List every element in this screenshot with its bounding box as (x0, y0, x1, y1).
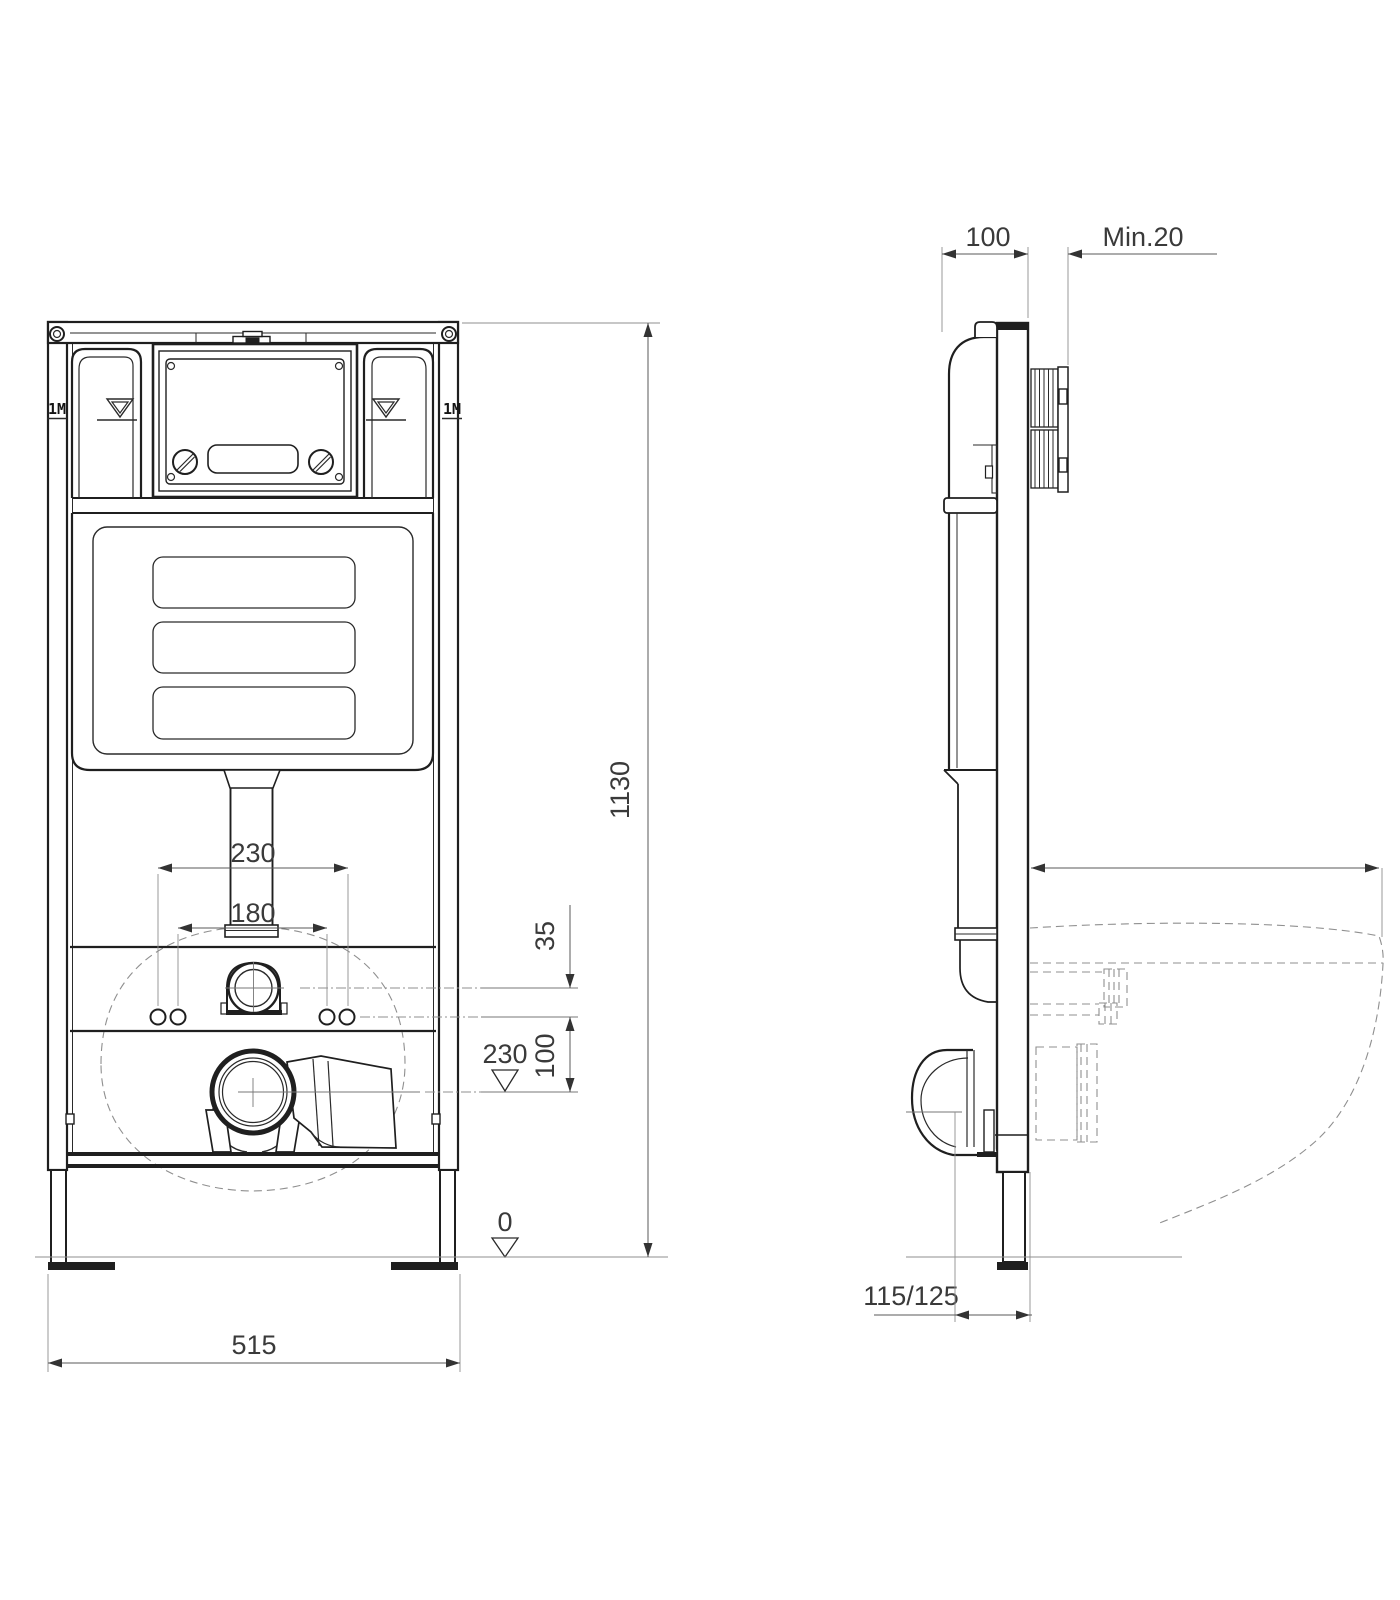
dim-label-1130: 1130 (605, 761, 635, 819)
dim-label-115-125: 115/125 (863, 1281, 959, 1311)
rail-clip-right (432, 1114, 440, 1124)
right-foot (391, 1262, 458, 1270)
left-rail (48, 322, 67, 1170)
datum-triangle-icon (492, 1238, 518, 1257)
front-view: 1M 1M 230 180 35 10 (35, 322, 668, 1372)
waste-outlet (206, 1051, 420, 1152)
cistern (72, 344, 433, 770)
dimension-frame-depth: 100 (942, 222, 1028, 332)
cistern-label-panel (93, 527, 413, 754)
hidden-waste-connector (1036, 1044, 1097, 1142)
right-leg (440, 1170, 455, 1263)
waste-elbow (287, 1056, 396, 1148)
screw-icon-left (173, 450, 197, 474)
dim-label-35: 35 (530, 921, 560, 951)
hidden-inlet-connector (1104, 969, 1127, 1007)
mounting-bolt (340, 1010, 355, 1025)
right-rail (439, 322, 458, 1170)
flush-pipe-profile (955, 784, 997, 1002)
hidden-flush-connector (1099, 1003, 1117, 1024)
datum-triangle-icon (492, 1070, 518, 1091)
label-slot (153, 622, 355, 673)
level-drain-height: 230 (482, 1039, 527, 1091)
screw-icon-right (309, 450, 333, 474)
technical-drawing: 1M 1M 230 180 35 10 (0, 0, 1400, 1600)
shaft-flange (1058, 367, 1068, 492)
cistern-arch-right (364, 349, 433, 498)
access-panel (153, 344, 357, 497)
mounting-bolt (151, 1010, 166, 1025)
label-slot (153, 557, 355, 608)
hidden-connections (1030, 923, 1383, 1224)
cistern-body (72, 513, 433, 770)
dimension-frame-width: 515 (48, 1274, 460, 1372)
dim-label-515: 515 (231, 1330, 276, 1360)
dim-label-100-depth: 100 (965, 222, 1010, 252)
frame-marker-left: 1M (48, 400, 66, 418)
cistern-arch-left (72, 349, 141, 498)
side-leg (1003, 1172, 1025, 1262)
level-label-0: 0 (497, 1207, 512, 1237)
dim-label-180-bolts: 180 (230, 898, 275, 928)
level-floor: 0 (492, 1207, 518, 1257)
flush-bend-connection (221, 962, 287, 1015)
frame-marker-right: 1M (443, 400, 461, 418)
level-label-230: 230 (482, 1039, 527, 1069)
dimension-pipe-to-bolts: 35 (530, 905, 575, 988)
fixing-hole-right (442, 327, 456, 341)
cistern-profile (944, 322, 997, 784)
hidden-bowl-profile (1030, 923, 1383, 1224)
side-view: 100 Min.20 115/125 (863, 222, 1383, 1322)
left-leg (51, 1170, 66, 1263)
side-foot (997, 1262, 1028, 1270)
bottom-rail (67, 1152, 439, 1156)
frame-profile (997, 323, 1028, 1270)
left-foot (48, 1262, 115, 1270)
inspection-shaft (1031, 367, 1068, 492)
fill-valve-cap (975, 322, 997, 337)
dim-label-100-right: 100 (530, 1033, 560, 1078)
dimension-wall-clearance: Min.20 (1068, 222, 1217, 365)
mounting-bolt (171, 1010, 186, 1025)
dimension-bowl-projection (1031, 864, 1382, 938)
mounting-bolt (320, 1010, 335, 1025)
dim-label-min20: Min.20 (1102, 222, 1183, 252)
rail-clip-left (66, 1114, 74, 1124)
dim-label-230-bolts: 230 (230, 838, 275, 868)
dimension-frame-height: 1130 (462, 323, 660, 1257)
label-slot (153, 687, 355, 739)
push-button-window (208, 445, 298, 473)
water-level-icon-left (97, 399, 137, 420)
dimension-bolts-to-drain: 100 (530, 1017, 575, 1092)
fixing-hole-left (50, 327, 64, 341)
